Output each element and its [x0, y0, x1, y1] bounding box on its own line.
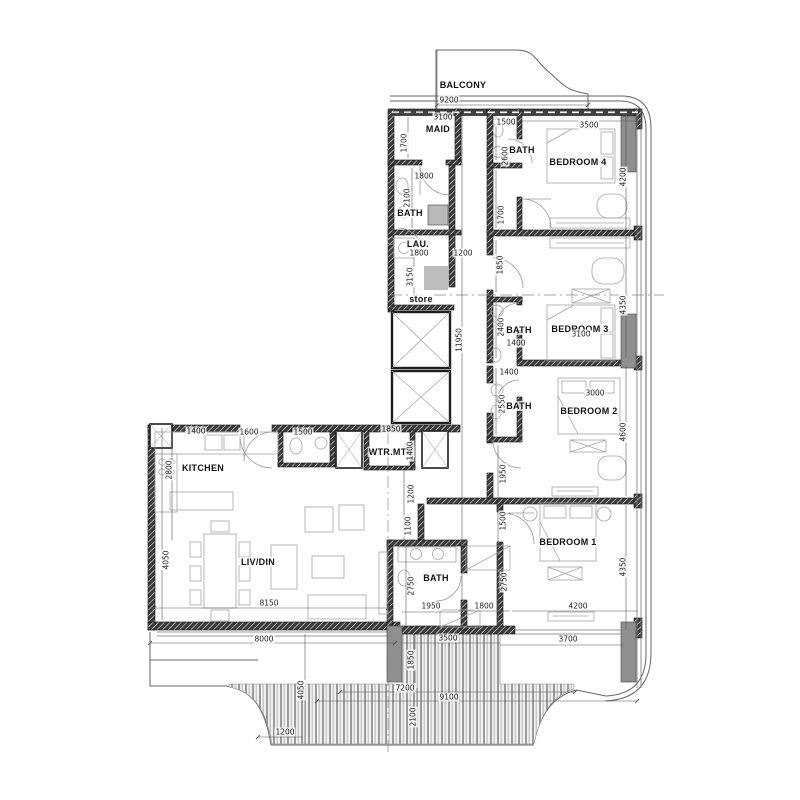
duct-shaft-icon: [150, 424, 172, 448]
duct-shaft-icon: [422, 431, 448, 468]
sofa-icon: [308, 595, 366, 619]
armchair-icon: [598, 456, 626, 480]
bath1-door: [436, 576, 461, 601]
closet-icon: [440, 610, 480, 627]
bed-icon: [540, 503, 596, 561]
vanity-icon: [398, 547, 456, 562]
elevator-icon: [392, 371, 450, 423]
side-table-icon: [523, 507, 537, 521]
armchair-icon: [305, 507, 333, 532]
bedroom4-door: [522, 199, 551, 228]
basin-icon: [493, 147, 504, 158]
bed-icon: [547, 129, 615, 183]
closet-icon: [466, 546, 510, 570]
shafts-layer: [150, 312, 450, 468]
toilet-icon: [398, 570, 410, 586]
coffee-table-icon: [312, 556, 344, 578]
bed-icon: [558, 378, 620, 434]
bench-icon: [572, 289, 610, 303]
sofa-icon: [271, 545, 297, 589]
toilet-door: [240, 436, 272, 468]
side-table-icon: [597, 507, 611, 521]
basin-icon: [491, 384, 503, 396]
floor-plan-drawing: [0, 0, 800, 800]
basin-icon: [315, 437, 327, 449]
wardrobe-icon: [550, 218, 630, 228]
toilet-icon: [290, 438, 302, 454]
armchair-icon: [597, 194, 627, 218]
bench-icon: [548, 567, 582, 580]
maid-door: [420, 165, 450, 195]
floor-plan-page: BALCONYMAIDBATHLAU.storeBATHBEDROOM 4BAT…: [0, 0, 800, 800]
wardrobe-icon: [552, 487, 598, 496]
bedroom1-door: [503, 513, 534, 544]
kitchen-door: [244, 432, 273, 461]
dining-table-icon: [190, 521, 250, 621]
bed-icon: [547, 305, 615, 361]
toilet-icon: [493, 123, 503, 137]
armchair-icon: [339, 505, 364, 530]
kitchen-counter-icon: [155, 432, 278, 512]
duct-shaft-icon: [336, 431, 362, 468]
bath4-door: [508, 139, 532, 163]
bath2-door: [497, 380, 519, 402]
wardrobe-icon: [548, 612, 594, 621]
bedroom2-door: [493, 440, 521, 468]
store-mat: [424, 266, 448, 290]
tv-console-icon: [379, 552, 387, 614]
wardrobe-icon: [550, 238, 630, 248]
washer-icon: [394, 238, 414, 258]
bench-icon: [570, 440, 606, 452]
armchair-icon: [592, 258, 624, 284]
shower-pad: [428, 205, 448, 225]
bedroom3-door: [493, 258, 523, 288]
balcony-outline: [436, 50, 588, 109]
basin-icon: [398, 206, 410, 218]
elevator-icon: [392, 312, 450, 368]
toilet-icon: [396, 178, 408, 194]
